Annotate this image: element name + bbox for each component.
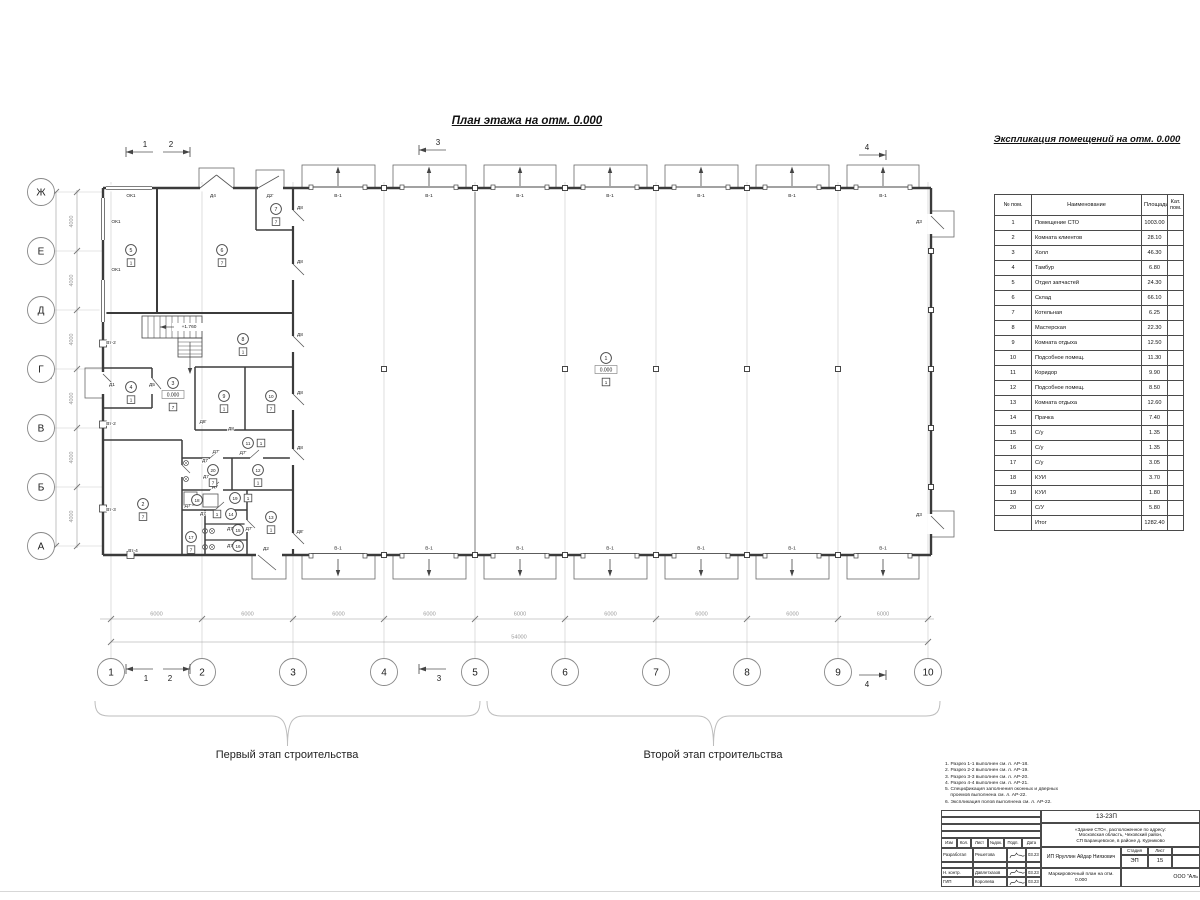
table-cell [1168,471,1184,486]
gate-arrow-head [336,167,340,174]
room-number: 3 [172,381,175,387]
room-number: 10 [268,394,274,399]
opening-gap [856,551,910,558]
column [563,367,568,372]
table-cell: С/у [1032,456,1142,471]
plan-annotation: Д5 [149,382,155,388]
opening-gap [674,551,728,558]
sheets-header [1172,847,1200,855]
stamp-row-cell [1007,868,1026,877]
table-cell [1168,501,1184,516]
axis-label: 2 [199,668,205,679]
axis-label: Г [38,365,44,376]
gate-arrow-head [608,570,612,577]
company-name: ООО "Аль [1121,868,1200,887]
table-row: 2Комната клиентов28.10 [995,231,1184,246]
room-number: 16 [235,544,241,549]
column [745,553,750,558]
room-number: 8 [242,337,245,343]
table-cell: Склад [1032,291,1142,306]
stamp-empty-row [941,810,1041,817]
table-row: 16С/у1.35 [995,441,1184,456]
table-row: 20С/У5.80 [995,501,1184,516]
stamp-column-label: Изм [941,838,957,848]
stamp-row-cell [1007,848,1026,862]
table-cell: Комната отдыха [1032,336,1142,351]
plan-annotation: Вт-2 [106,421,116,427]
table-cell [1168,216,1184,231]
table-cell: 5.80 [1142,501,1168,516]
table-cell [1168,396,1184,411]
table-row: 13Комната отдыха12.60 [995,396,1184,411]
table-cell: 10 [995,351,1032,366]
floor-type-number: 7 [275,219,278,224]
stamp-row-cell [1007,877,1026,887]
stamp-row-cell: 03.23 [1026,868,1041,877]
dim-text: 6000 [332,612,344,618]
opening-gap [493,551,547,558]
plan-annotation: Д2 [263,546,269,552]
section-label: 3 [436,138,441,147]
plan-annotation: Д7' [246,526,253,532]
sheets-value [1172,855,1200,868]
column [654,553,659,558]
client-name: ИП Яруллин Айдар Ниязович [1041,847,1121,868]
plan-annotation: Д8 [297,390,303,396]
schedule-col-header: Наименование [1032,195,1142,216]
gate-post [363,554,367,559]
room-schedule-body: 1Помещение СТО1003.002Комната клиентов28… [995,216,1184,531]
gate-label: В-1 [334,546,342,552]
note-line: 6. Экспликация полов выполнена см. л. АР… [945,800,1165,806]
table-row: 18КУИ3.70 [995,471,1184,486]
gate-arrow-head [336,570,340,577]
section-label: 4 [865,143,870,152]
column [929,249,934,254]
table-cell [1168,231,1184,246]
column [929,308,934,313]
gate-post [817,554,821,559]
table-row: Итог1282.40 [995,516,1184,531]
room-schedule-table: № пом.НаименованиеПлощадьКат. пом. 1Поме… [994,194,1184,531]
sheet-title: Маркировочный план на отм. 0.000 [1041,868,1121,887]
plan-annotation: Д2' [267,193,274,199]
stamp-column-label: Дата [1022,838,1041,848]
stamp-empty-row [941,817,1041,824]
column [745,367,750,372]
stamp-row-cell: 03.23 [1026,877,1041,887]
table-cell: 12.50 [1142,336,1168,351]
opening-gap [256,552,282,559]
plan-annotation: Вт-3 [106,507,116,513]
exit-porch [931,511,954,537]
axis-label: 9 [835,668,841,679]
table-row: 5Отдел запчастей24.30 [995,276,1184,291]
table-cell [1168,381,1184,396]
room-number: 9 [223,394,226,400]
dim-text: 6000 [604,612,616,618]
plan-annotation: ОК1 [111,267,121,273]
table-row: 11Коридор9.90 [995,366,1184,381]
dim-text: 6000 [786,612,798,618]
dim-text: 4000 [69,511,75,523]
doc-number: 13-23П [1041,810,1200,823]
table-cell: 46.30 [1142,246,1168,261]
floor-type-number: 7 [221,260,224,265]
floor-type-number: 1 [247,496,250,501]
signature-scribble [1009,868,1025,877]
floor-type-number: 7 [270,406,273,411]
gate-post [854,554,858,559]
stair-arrow-head [188,368,192,374]
room-number: 19 [232,496,238,501]
plan-annotation: Д7' [240,450,247,456]
stamp-row-cell: 03.23 [1026,848,1041,862]
room-number: 6 [221,248,224,254]
column [382,186,387,191]
gate-post [309,185,313,190]
section-label: 1 [143,140,148,149]
table-row: 19КУИ1.80 [995,486,1184,501]
floor-type-number: 1 [257,480,260,485]
opening-gap [765,551,819,558]
dim-text: 6000 [241,612,253,618]
section-arrow [126,667,133,672]
plan-annotation: Вт-4 [128,548,138,554]
gate-post [400,554,404,559]
gate-post [908,554,912,559]
plan-annotation: Д8' [297,529,304,535]
room-number: 20 [210,468,216,473]
table-cell: 6 [995,291,1032,306]
room-number: 11 [246,441,251,446]
gate-post [581,554,585,559]
plan-annotation: Д8 [297,205,303,211]
sink-fixture [203,494,218,507]
gate-label: В-1 [879,546,887,552]
gate-post [635,554,639,559]
plan-annotation: ОК1 [126,193,136,199]
plan-annotation: Д8 [297,259,303,265]
floor-type-number: 1 [223,406,226,411]
section-arrow [126,150,133,155]
table-cell: Котельная [1032,306,1142,321]
table-row: 10Подсобное помещ.11.30 [995,351,1184,366]
table-cell: 3.05 [1142,456,1168,471]
table-cell: 1.35 [1142,426,1168,441]
stamp-empty-row [941,824,1041,831]
gate-arrow-head [699,570,703,577]
table-cell: Подсобное помещ. [1032,351,1142,366]
table-cell: С/У [1032,501,1142,516]
table-row: 6Склад66.10 [995,291,1184,306]
column [563,186,568,191]
floor-type-number: 1 [130,397,133,402]
plan-annotation: Д8 [297,332,303,338]
axis-label: А [38,542,45,553]
table-cell: 6.80 [1142,261,1168,276]
stamp-empty-row [941,831,1041,838]
plan-annotation: Д8 [297,445,303,451]
plan-annotation: Д8' [200,419,207,425]
plan-annotation: Д3 [916,512,922,518]
table-cell: Мастерская [1032,321,1142,336]
table-row: 17С/у3.05 [995,456,1184,471]
gate-post [635,185,639,190]
gate-label: В-1 [334,193,342,199]
table-cell: Помещение СТО [1032,216,1142,231]
gate-post [672,185,676,190]
stamp-row-cell: ГИП [941,877,973,887]
table-cell: 5 [995,276,1032,291]
table-cell: Коридор [1032,366,1142,381]
axis-label: 8 [744,668,750,679]
room-number: 5 [130,248,133,254]
stamp-row-cell: Решетова [973,848,1007,862]
gate-post [854,185,858,190]
plan-annotation: Вт-2 [106,340,116,346]
floor-type-number: 1 [242,349,245,354]
table-row: 9Комната отдыха12.50 [995,336,1184,351]
table-cell: 28.10 [1142,231,1168,246]
gate-post [763,554,767,559]
section-label: 2 [168,674,173,683]
schedule-col-header: № пом. [995,195,1032,216]
floor-type-number: 1 [260,441,263,446]
elevation-value: 0.000 [600,368,613,374]
table-cell [1168,486,1184,501]
table-cell: 17 [995,456,1032,471]
table-cell [1168,366,1184,381]
dim-text: 4000 [69,452,75,464]
table-cell: 9 [995,336,1032,351]
room-number: 14 [228,512,234,517]
table-cell [1168,336,1184,351]
gate-post [817,185,821,190]
gate-label: В-1 [697,193,705,199]
plan-annotation: Д7' [185,503,192,509]
table-row: 1Помещение СТО1003.00 [995,216,1184,231]
notes-block: 1. Разрез 1-1 выполнен см. л. АР-18.2. Р… [945,762,1165,806]
opening-gap [100,198,107,240]
gate-post [545,554,549,559]
room-number: 4 [130,385,133,391]
room-number: 17 [188,535,194,540]
opening-gap [200,185,233,192]
column [929,367,934,372]
room-number: 2 [142,502,145,508]
gate-post [908,185,912,190]
floor-type-number: 1 [605,380,608,385]
room-number: 7 [275,207,278,213]
project-address-line: СП Баранцевское, в районе д. Курниково [1076,838,1164,843]
section-arrow [183,150,190,155]
gate-label: В-1 [516,546,524,552]
gate-label: В-1 [788,193,796,199]
table-cell: КУИ [1032,486,1142,501]
table-cell: Подсобное помещ. [1032,381,1142,396]
column [836,367,841,372]
column [473,553,478,558]
opening-gap [583,551,637,558]
table-cell [1168,321,1184,336]
plan-annotation: Д7' [213,449,220,455]
floor-type-number: 7 [142,514,145,519]
stage-header: Стадия [1121,847,1148,855]
axis-label: В [38,424,45,435]
opening-gap [402,551,456,558]
gate-post [309,554,313,559]
dim-text: 4000 [69,216,75,228]
dim-text: 6000 [423,612,435,618]
column [745,186,750,191]
stamp-column-label: Кол. [957,838,971,848]
axis-label: Ж [36,188,46,199]
plan-annotation: ОК1 [111,219,121,225]
plan-annotation: Д7 [202,458,208,464]
table-cell [1168,411,1184,426]
gate-arrow-head [608,167,612,174]
gate-label: В-1 [425,193,433,199]
table-cell: 12.60 [1142,396,1168,411]
table-cell [1168,351,1184,366]
dim-text: 4000 [69,393,75,405]
table-cell: 15 [995,426,1032,441]
gate-post [763,185,767,190]
section-label: 4 [865,680,870,689]
axis-label: Б [38,483,45,494]
table-cell: 9.90 [1142,366,1168,381]
table-cell [1168,261,1184,276]
axis-label: 10 [922,668,934,679]
dim-text: 4000 [69,334,75,346]
plan-title: План этажа на отм. 0.000 [417,115,637,127]
opening-gap [928,514,935,534]
door-porch [252,555,286,579]
gate-arrow-head [427,570,431,577]
room-schedule-header: № пом.НаименованиеПлощадьКат. пом. [995,195,1184,216]
floor-type-number: 7 [190,547,193,552]
table-cell: Комната клиентов [1032,231,1142,246]
sheet-header: Лист [1148,847,1172,855]
section-label: 3 [437,674,442,683]
column [382,553,387,558]
table-cell: 14 [995,411,1032,426]
table-cell [1168,306,1184,321]
table-cell [1168,426,1184,441]
stage-brace [95,701,480,746]
gate-label: В-1 [879,193,887,199]
project-address: «Здание СТО», расположенное по адресу: М… [1041,823,1200,847]
table-row: 3Холл46.30 [995,246,1184,261]
plan-annotation: Д4 [210,193,216,199]
gate-post [454,554,458,559]
gate-post [491,185,495,190]
room-number: 1 [605,356,608,362]
table-cell: 1003.00 [1142,216,1168,231]
table-cell: Комната отдыха [1032,396,1142,411]
table-row: 15С/у1.35 [995,426,1184,441]
plan-annotation: Д8 [228,426,234,432]
gate-post [672,554,676,559]
exit-porch [931,211,954,237]
stage2-label: Второй этап строительства [583,749,843,761]
column [836,186,841,191]
room-number: 12 [255,468,261,473]
table-cell: 11.30 [1142,351,1168,366]
table-cell [1168,516,1184,531]
plan-annotation: Д1 [109,382,115,388]
table-cell: 8.50 [1142,381,1168,396]
gate-post [726,554,730,559]
table-cell: Тамбур [1032,261,1142,276]
elevation-value: 0.000 [167,393,180,399]
table-cell: 13 [995,396,1032,411]
room-number: 13 [268,515,274,520]
table-cell: 7.40 [1142,411,1168,426]
dim-text: 6000 [877,612,889,618]
axis-label: 7 [653,668,659,679]
column [836,553,841,558]
gate-arrow-head [699,167,703,174]
opening-gap [928,214,935,234]
table-cell [1168,276,1184,291]
table-cell [995,516,1032,531]
gate-label: В-1 [606,546,614,552]
stamp-row-cell: Королева [973,877,1007,887]
table-row: 8Мастерская22.30 [995,321,1184,336]
stamp-column-label: №док. [988,838,1004,848]
gate-post [363,185,367,190]
table-cell: 19 [995,486,1032,501]
section-arrow [879,153,886,158]
table-row: 12Подсобное помещ.8.50 [995,381,1184,396]
table-cell: 12 [995,381,1032,396]
table-cell: 3 [995,246,1032,261]
plan-annotation: Д7 [200,511,206,517]
gate-post [726,185,730,190]
section-arrow [879,673,886,678]
gate-arrow-head [518,570,522,577]
schedule-col-header: Кат. пом. [1168,195,1184,216]
axis-label: 4 [381,668,387,679]
table-cell: 7 [995,306,1032,321]
axis-label: 3 [290,668,296,679]
axis-label: 6 [562,668,568,679]
opening-gap [100,280,107,322]
schedule-title: Экспликация помещений на отм. 0.000 [985,134,1189,145]
gate-arrow-head [518,167,522,174]
dim-text: 54000 [511,635,527,641]
column [929,426,934,431]
table-cell [1168,441,1184,456]
table-cell: 6.25 [1142,306,1168,321]
stamp-columns-header: ИзмКол.Лист№док.Подп.Дата [941,838,1041,848]
table-cell: 1.80 [1142,486,1168,501]
table-row: 7Котельная6.25 [995,306,1184,321]
dim-text: 4000 [69,275,75,287]
axis-label: 5 [472,668,478,679]
plan-annotation: +1.760 [182,324,197,330]
schedule-col-header: Площадь [1142,195,1168,216]
gate-arrow-head [881,570,885,577]
dim-text: 6000 [695,612,707,618]
gate-post [454,185,458,190]
sheet-frame-line [0,891,1200,892]
floor-type-number: 7 [212,480,215,485]
axis-label: 1 [108,668,114,679]
table-cell: 20 [995,501,1032,516]
